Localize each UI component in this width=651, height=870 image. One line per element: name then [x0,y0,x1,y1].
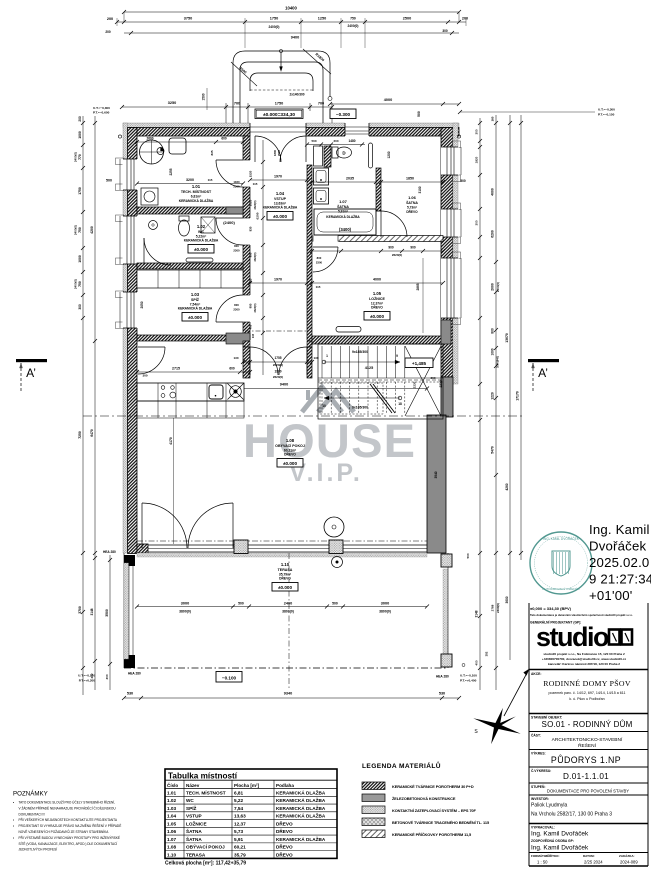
svg-text:INVESTOR:: INVESTOR: [531,797,549,801]
svg-text:ČÁST:: ČÁST: [531,733,541,738]
svg-text:1.02: 1.02 [167,798,177,803]
svg-text:800: 800 [491,328,495,334]
svg-text:1750: 1750 [270,17,278,21]
svg-text:900: 900 [388,246,394,250]
svg-text:200: 200 [462,17,468,21]
svg-text:±0.000: ±0.000 [283,461,297,466]
svg-text:KERAMICKÁ DLAŽBA: KERAMICKÁ DLAŽBA [263,205,298,210]
svg-text:13670: 13670 [505,333,509,343]
svg-text:+420800700700, dvoracek@studio: +420800700700, dvoracek@studio00.cz, www… [542,657,627,661]
svg-text:9 21:27:34: 9 21:27:34 [589,572,651,587]
svg-text:1020: 1020 [233,180,240,184]
svg-text:4125: 4125 [365,366,373,370]
svg-text:PŘI VEŠKERÝCH NEJASNOSTECH KON: PŘI VEŠKERÝCH NEJASNOSTECH KONTAKTUJTE P… [19,817,118,822]
svg-text:3800(0): 3800(0) [379,610,391,614]
svg-text:KERAMICKÁ DLAŽBA: KERAMICKÁ DLAŽBA [276,804,326,811]
svg-text:2x140/300: 2x140/300 [289,93,304,97]
svg-text:1820: 1820 [475,156,479,163]
svg-text:1960: 1960 [274,370,281,374]
svg-text:VÝKRES:: VÝKRES: [531,751,546,756]
svg-text:TERASA: TERASA [278,568,293,572]
svg-text:200: 200 [333,139,338,143]
svg-text:835: 835 [210,150,214,155]
svg-text:Č.VÝKRESU:: Č.VÝKRESU: [531,768,551,773]
svg-text:TATO DOKUMENTACE SLOUŽÍ PRO ÚČ: TATO DOKUMENTACE SLOUŽÍ PRO ÚČELY STAVEB… [19,800,116,805]
svg-text:KERAMICKÁ DLAŽBA: KERAMICKÁ DLAŽBA [184,238,219,243]
svg-text:±0.000: ±0.000 [278,585,292,590]
svg-text:Celková plocha [m²]: 117,42+3: Celková plocha [m²]: 117,42+35,79 [165,861,246,867]
svg-text:OBÝVACÍ POKOJ: OBÝVACÍ POKOJ [186,843,225,850]
svg-text:Na Vrcholu 2582/17, 130 00 Pra: Na Vrcholu 2582/17, 130 00 Praha 3 [531,812,612,818]
svg-text:RODINNÉ DOMY PŠOV: RODINNÉ DOMY PŠOV [543,678,631,688]
svg-text:FORMÁT/MĚŘÍTKO:: FORMÁT/MĚŘÍTKO: [531,853,560,858]
svg-text:P.T.=−0,150: P.T.=−0,150 [598,113,615,117]
svg-text:500: 500 [311,139,316,143]
svg-text:300: 300 [430,376,435,380]
svg-text:4000: 4000 [373,278,381,282]
svg-text:P.T.=−0,600: P.T.=−0,600 [93,111,110,115]
svg-text:1220: 1220 [491,392,495,400]
svg-text:300: 300 [142,374,147,378]
svg-text:3800(0): 3800(0) [179,610,191,614]
svg-text:1.10: 1.10 [167,853,177,858]
svg-text:2400(0): 2400(0) [74,225,78,235]
svg-text:3200: 3200 [186,178,194,182]
svg-text:2400(0): 2400(0) [348,24,359,28]
svg-text:3000: 3000 [381,602,389,606]
svg-text:18: 18 [398,402,402,406]
svg-text:10400: 10400 [285,6,297,11]
svg-text:5,22: 5,22 [234,798,244,803]
svg-text:Název: Název [186,783,200,788]
svg-text:1755: 1755 [274,356,281,360]
svg-text:10: 10 [322,404,326,408]
svg-text:A’: A’ [26,366,36,380]
svg-text:AKCE:: AKCE: [531,672,541,676]
svg-text:studio: studio [536,622,609,652]
svg-text:900: 900 [249,303,253,308]
svg-text:900: 900 [410,246,416,250]
svg-text:KERAMICKÁ DLAŽBA: KERAMICKÁ DLAŽBA [276,796,326,803]
svg-text:800: 800 [234,244,239,248]
svg-text:Ing. Kamil Dvořáček: Ing. Kamil Dvořáček [531,831,589,838]
svg-text:1750: 1750 [78,187,82,195]
svg-text:DŘEVO: DŘEVO [406,209,418,214]
svg-text:OBÝVACÍ POKOJ: OBÝVACÍ POKOJ [275,443,305,448]
svg-text:SPÍŽ: SPÍŽ [186,804,197,811]
svg-text:2300: 2300 [233,249,240,253]
svg-text:KERAMICKÁ DLAŽBA: KERAMICKÁ DLAŽBA [276,835,326,842]
svg-text:6200: 6200 [491,230,495,238]
svg-text:DŘEVO: DŘEVO [279,576,291,581]
svg-text:LOŽNICE: LOŽNICE [369,296,385,301]
svg-text:+01'00': +01'00' [589,588,632,603]
svg-text:530: 530 [127,692,133,696]
svg-text:115: 115 [253,182,258,186]
svg-text:130: 130 [233,356,238,360]
svg-text:3250: 3250 [168,101,176,105]
svg-text:KERAMICKÁ DLAŽBA: KERAMICKÁ DLAŽBA [178,306,213,311]
svg-text:600: 600 [229,367,235,371]
svg-text:2230: 2230 [413,381,417,388]
svg-text:3500: 3500 [105,609,109,617]
svg-text:2865: 2865 [416,283,420,290]
svg-text:750: 750 [78,281,82,287]
svg-text:2620(0): 2620(0) [273,363,283,367]
svg-text:5,73m²: 5,73m² [407,206,417,210]
svg-text:5,91m²: 5,91m² [338,210,348,214]
svg-text:115: 115 [316,285,321,289]
svg-text:(2400): (2400) [223,220,235,225]
svg-text:Tato dokumentace je duševním v: Tato dokumentace je duševním vlastnictví… [530,613,633,617]
svg-text:U.T.=−0,300: U.T.=−0,300 [598,108,615,112]
svg-text:2050: 2050 [140,301,144,308]
svg-text:300: 300 [475,220,479,225]
svg-text:2300: 2300 [233,308,240,312]
svg-text:AUTORIZOVANÝ INŽENÝR: AUTORIZOVANÝ INŽENÝR [542,586,580,591]
svg-text:1000: 1000 [78,255,82,263]
svg-text:3800(0): 3800(0) [282,610,294,614]
svg-text:3750: 3750 [184,17,192,21]
svg-text:200: 200 [78,116,82,122]
svg-text:1: 1 [326,354,328,358]
svg-text:13,63: 13,63 [234,814,246,819]
svg-text:k. ú. Pšov u Podbořan: k. ú. Pšov u Podbořan [569,697,604,701]
svg-text:DATUM:: DATUM: [583,854,595,858]
svg-text:NOVĚ VZNESENÝCH POŽADAVKŮ ZE S: NOVĚ VZNESENÝCH POŽADAVKŮ ZE STRANY STAV… [19,829,110,834]
svg-text:KONTAKTNÍ ZATEPLOVACÍ SYSTÉM –: KONTAKTNÍ ZATEPLOVACÍ SYSTÉM – EPS 70F [392,808,476,813]
svg-text:ŠATNA: ŠATNA [186,827,202,834]
svg-text:TECH. MÍSTNOST: TECH. MÍSTNOST [181,189,212,194]
svg-text:1.04: 1.04 [276,191,285,196]
svg-text:Číslo: Číslo [167,782,178,788]
svg-text:2620(0): 2620(0) [253,252,257,261]
svg-text:300: 300 [442,29,448,33]
svg-text:4200: 4200 [90,226,94,234]
svg-text:770: 770 [78,154,82,160]
svg-text:±0.000: ±0.000 [188,315,202,320]
svg-text:12,37: 12,37 [234,821,246,826]
svg-text:160: 160 [491,116,495,121]
svg-text:1.07: 1.07 [167,837,177,842]
svg-text:ŠATNA: ŠATNA [406,200,418,205]
svg-text:2000: 2000 [491,283,495,291]
svg-text:1.04: 1.04 [167,814,177,819]
svg-text:ZODPOVĚDNÁ OSOBA GP:: ZODPOVĚDNÁ OSOBA GP: [531,838,574,843]
svg-text:500: 500 [332,602,338,606]
svg-text:2400(0): 2400(0) [74,152,78,162]
svg-text:D.01-1.1.01: D.01-1.1.01 [563,772,609,781]
svg-text:2620(0): 2620(0) [273,375,283,379]
svg-text:1.07: 1.07 [339,199,348,204]
svg-text:1500: 1500 [202,93,206,100]
svg-text:KERAMICKÉ TVÁRNICE POROTHERM 3: KERAMICKÉ TVÁRNICE POROTHERM 30 P+D [392,784,474,789]
svg-text:300: 300 [105,674,109,679]
svg-text:7250: 7250 [78,431,82,439]
svg-text:2500: 2500 [277,150,281,156]
svg-text:9x185/300: 9x185/300 [352,350,368,354]
svg-text:700: 700 [318,102,324,106]
svg-text:500: 500 [460,179,466,183]
svg-text:STUPEŇ:: STUPEŇ: [531,784,545,789]
svg-text:3600: 3600 [505,596,509,603]
svg-text:3148: 3148 [475,610,479,617]
svg-text:2025.02.0: 2025.02.0 [589,555,649,570]
svg-text:V ŽÁDNÉM PŘÍPADĚ NENAHRAZUJE P: V ŽÁDNÉM PŘÍPADĚ NENAHRAZUJE PROVÁDĚCÍ Č… [19,805,117,810]
svg-text:2300: 2300 [316,261,323,265]
svg-text:400: 400 [249,324,253,329]
svg-text:2600: 2600 [146,137,153,141]
svg-text:JEDNOTLIVÝCH PROFESÍ: JEDNOTLIVÝCH PROFESÍ [19,848,58,852]
svg-text:2715: 2715 [172,367,180,371]
svg-text:2620(0): 2620(0) [253,303,257,312]
svg-text:2620(0): 2620(0) [253,200,257,209]
svg-text:U.T.=−0,300: U.T.=−0,300 [93,106,110,110]
svg-text:1060(940): 1060(940) [496,356,500,368]
svg-text:1970: 1970 [274,278,282,282]
svg-text:Tabulka místností: Tabulka místností [168,772,238,781]
svg-text:115: 115 [208,178,213,182]
svg-text:1.08: 1.08 [167,845,177,850]
svg-text:DŘEVO: DŘEVO [276,819,293,826]
svg-text:2300: 2300 [233,185,240,189]
svg-text:STAVEBNÍ OBJEKT:: STAVEBNÍ OBJEKT: [531,715,562,720]
svg-text:A’: A’ [538,366,548,380]
svg-text:kancelář: Karlovo náměstí 287/: kancelář: Karlovo náměstí 287/18, 120 00… [548,662,620,666]
svg-text:302: 302 [485,651,489,656]
svg-text:3700: 3700 [78,606,82,614]
svg-text:500: 500 [417,111,421,117]
svg-text:1020: 1020 [249,199,253,206]
svg-text:Plocha [m²]: Plocha [m²] [234,783,259,788]
svg-text:500: 500 [106,179,112,183]
svg-text:Podlaha: Podlaha [276,783,294,788]
svg-text:2500: 2500 [403,17,411,21]
svg-text:3940: 3940 [434,471,438,478]
svg-text:800: 800 [234,303,239,307]
svg-text:ŠATNA: ŠATNA [186,835,202,842]
svg-text:P.T.=+0,400: P.T.=+0,400 [460,679,477,683]
svg-text:POZNÁMKY: POZNÁMKY [13,791,48,798]
svg-text:1 : 50: 1 : 50 [537,860,548,865]
svg-text:1970: 1970 [274,175,282,179]
svg-text:P.T.=+0,200: P.T.=+0,200 [79,679,96,683]
svg-text:±0.000: ±0.000 [194,247,208,252]
svg-text:VSTUP: VSTUP [186,814,202,819]
svg-text:HEA 280: HEA 280 [128,672,141,676]
svg-text:KERAMICKÁ DLAŽBA: KERAMICKÁ DLAŽBA [276,812,326,819]
svg-text:2620(0): 2620(0) [392,253,402,257]
svg-text:HEA 280: HEA 280 [103,550,116,554]
svg-text:1750: 1750 [275,102,283,106]
svg-text:BETONOVÉ TVÁRNICE TRACENÉHO BE: BETONOVÉ TVÁRNICE TRACENÉHO BEDNĚNÍ TL. … [392,820,490,825]
svg-text:DOKUMENTACI !!!: DOKUMENTACI !!! [19,812,46,816]
svg-text:1520: 1520 [249,170,253,177]
svg-text:2035: 2035 [346,177,354,181]
svg-text:±0.000: ±0.000 [273,214,287,219]
svg-text:pozemek parc. č. 14/12, 697, 1: pozemek parc. č. 14/12, 697, 14/14, 14/1… [548,691,625,695]
svg-text:WC: WC [186,798,194,803]
svg-text:KERAMICKÉ PŘÍČKOVKY POROTHERM: KERAMICKÉ PŘÍČKOVKY POROTHERM 11,5 [392,832,472,837]
svg-text:4170: 4170 [169,437,173,445]
svg-text:9400: 9400 [291,36,299,40]
svg-text:1850: 1850 [406,177,414,181]
svg-text:TECH. MÍSTNOST: TECH. MÍSTNOST [186,788,226,795]
svg-text:DŘEVO: DŘEVO [371,305,383,310]
svg-text:PŮDORYS 1.NP: PŮDORYS 1.NP [551,754,621,765]
svg-text:5,91: 5,91 [234,837,244,842]
svg-text:530: 530 [439,692,445,696]
svg-text:Dvořáček: Dvořáček [589,539,647,554]
svg-text:200: 200 [105,30,111,34]
svg-text:±0.000=334,30: ±0.000=334,30 [263,112,295,118]
svg-text:ING. KAMIL DVOŘÁČEK: ING. KAMIL DVOŘÁČEK [543,536,580,541]
svg-text:ŠATNA: ŠATNA [337,204,349,209]
svg-text:500: 500 [466,553,470,558]
svg-text:9340: 9340 [284,692,292,696]
svg-text:2/25 2024: 2/25 2024 [584,860,603,865]
svg-text:300: 300 [475,129,479,134]
svg-text:1.01: 1.01 [167,790,177,795]
svg-text:4000: 4000 [384,98,392,102]
svg-text:DŘEVO: DŘEVO [276,827,293,834]
svg-text:1.10: 1.10 [281,562,290,567]
svg-text:830: 830 [249,226,253,231]
svg-text:2230: 2230 [439,380,443,387]
svg-text:KERAMICKÁ DLAŽBA: KERAMICKÁ DLAŽBA [326,214,360,219]
svg-text:9: 9 [396,354,398,358]
svg-text:2400(0): 2400(0) [269,25,280,29]
svg-text:VYPRACOVAL:: VYPRACOVAL: [531,826,555,830]
svg-text:PROJEKTANT SI VYHRAZUJE PRÁVO: PROJEKTANT SI VYHRAZUJE PRÁVO NA ZMĚNU Ř… [19,823,122,828]
svg-text:6470: 6470 [90,429,94,437]
svg-text:Ing. Kamil: Ing. Kamil [589,522,650,537]
svg-text:DOKUMENTACE PRO POVOLENÍ STAVB: DOKUMENTACE PRO POVOLENÍ STAVBY [547,789,629,794]
svg-text:7,54: 7,54 [234,806,244,811]
svg-text:PŘI VÝSTAVBĚ BUDOU VYNECHÁNY P: PŘI VÝSTAVBĚ BUDOU VYNECHÁNY PROSTUPY PR… [19,835,121,840]
svg-text:Ing. Kamil Dvořáček: Ing. Kamil Dvořáček [531,845,589,852]
svg-text:KERAMICKÁ DLAŽBA: KERAMICKÁ DLAŽBA [179,198,214,203]
svg-text:KERAMICKÁ DLAŽBA: KERAMICKÁ DLAŽBA [276,788,326,795]
svg-text:studio00 projekt s.r.o., Na Fo: studio00 projekt s.r.o., Na Folimance 15… [543,652,625,656]
svg-text:WC: WC [198,230,204,234]
svg-text:±0.000: ±0.000 [370,314,384,319]
svg-text:2400: 2400 [284,602,292,606]
svg-text:2400(0): 2400(0) [74,279,78,289]
svg-text:750: 750 [350,17,356,21]
svg-text:1.06: 1.06 [408,195,417,200]
svg-text:1000: 1000 [78,131,82,139]
svg-text:115: 115 [251,333,255,338]
svg-text:1.05: 1.05 [373,291,382,296]
svg-text:700: 700 [234,102,240,106]
svg-text:17170: 17170 [516,391,520,401]
svg-text:600: 600 [221,137,227,141]
svg-text:1.05: 1.05 [167,821,177,826]
svg-text:6200: 6200 [256,212,260,219]
svg-text:965: 965 [249,278,253,283]
svg-text:1.02: 1.02 [197,224,206,229]
svg-text:2400(0): 2400(0) [496,282,500,292]
svg-text:(3400): (3400) [339,227,352,232]
svg-text:2400(0): 2400(0) [496,603,500,613]
svg-text:DŘEVO: DŘEVO [276,843,293,850]
svg-text:60,21: 60,21 [234,845,246,850]
svg-text:−0.100: −0.100 [222,676,237,681]
svg-text:3000: 3000 [181,602,189,606]
svg-text:6,81m²: 6,81m² [191,195,202,199]
svg-text:DŘEVO: DŘEVO [276,851,293,858]
svg-text:SÍTĚ (VODA, KANALIZACE, ELEKTR: SÍTĚ (VODA, KANALIZACE, ELEKTRO, APOD.) … [19,841,118,846]
svg-text:U.T.=−0,100: U.T.=−0,100 [78,674,95,678]
svg-text:1480: 1480 [348,139,355,143]
svg-text:3148: 3148 [90,608,94,615]
svg-text:1800: 1800 [273,150,277,156]
svg-text:5470: 5470 [491,446,495,454]
svg-text:5,73: 5,73 [234,829,244,834]
svg-text:9x165/300: 9x165/300 [352,406,368,410]
svg-text:ŽELEZOBETONOVÁ KONSTRUKCE: ŽELEZOBETONOVÁ KONSTRUKCE [392,796,456,801]
svg-text:−0.300: −0.300 [336,112,351,117]
svg-text:2255: 2255 [169,168,173,175]
svg-text:1.01: 1.01 [192,184,201,189]
svg-text:SO.01 - RODINNÝ DŮM: SO.01 - RODINNÝ DŮM [542,720,633,729]
svg-text:200: 200 [107,17,113,21]
svg-text:DŘEVO: DŘEVO [284,452,296,457]
svg-text:1200: 1200 [387,151,391,158]
svg-text:TERASA: TERASA [186,853,206,858]
svg-text:130: 130 [313,356,318,360]
svg-text:3100: 3100 [418,186,422,193]
svg-text:9400: 9400 [280,383,288,387]
svg-text:HEA 280: HEA 280 [436,675,449,679]
svg-text:750: 750 [78,227,82,233]
svg-text:1.03: 1.03 [191,292,200,297]
svg-text:2024-089: 2024-089 [620,860,638,865]
svg-text:+1,485: +1,485 [412,361,427,366]
svg-text:ZAKÁZKA:: ZAKÁZKA: [619,853,635,858]
svg-text:4000: 4000 [491,188,495,196]
svg-text:4260: 4260 [505,483,509,490]
svg-text:6,81: 6,81 [234,790,244,795]
svg-text:1250: 1250 [318,17,326,21]
svg-text:1.08: 1.08 [286,438,295,443]
svg-text:35,79: 35,79 [234,853,246,858]
svg-text:1.03: 1.03 [167,806,177,811]
svg-text:Paliok Lyudmyla: Paliok Lyudmyla [531,803,567,809]
svg-text:ARCHITEKTONICKO-STAVEBNÍ: ARCHITEKTONICKO-STAVEBNÍ [552,736,623,743]
svg-text:800: 800 [317,256,322,260]
svg-text:VSTUP: VSTUP [274,197,287,201]
svg-text:LOŽNICE: LOŽNICE [186,819,207,826]
svg-text:300: 300 [78,304,82,310]
svg-text:±0,000 = 334,30 (BPV): ±0,000 = 334,30 (BPV) [530,606,572,611]
svg-text:400: 400 [475,660,479,665]
svg-text:1.06: 1.06 [167,829,177,834]
svg-text:1000: 1000 [491,348,495,355]
svg-text:2768: 2768 [491,604,495,611]
svg-text:500: 500 [238,602,244,606]
svg-text:900: 900 [249,252,253,257]
svg-text:U.T.=−0,100: U.T.=−0,100 [460,674,477,678]
svg-text:SPÍŽ: SPÍŽ [191,297,200,302]
